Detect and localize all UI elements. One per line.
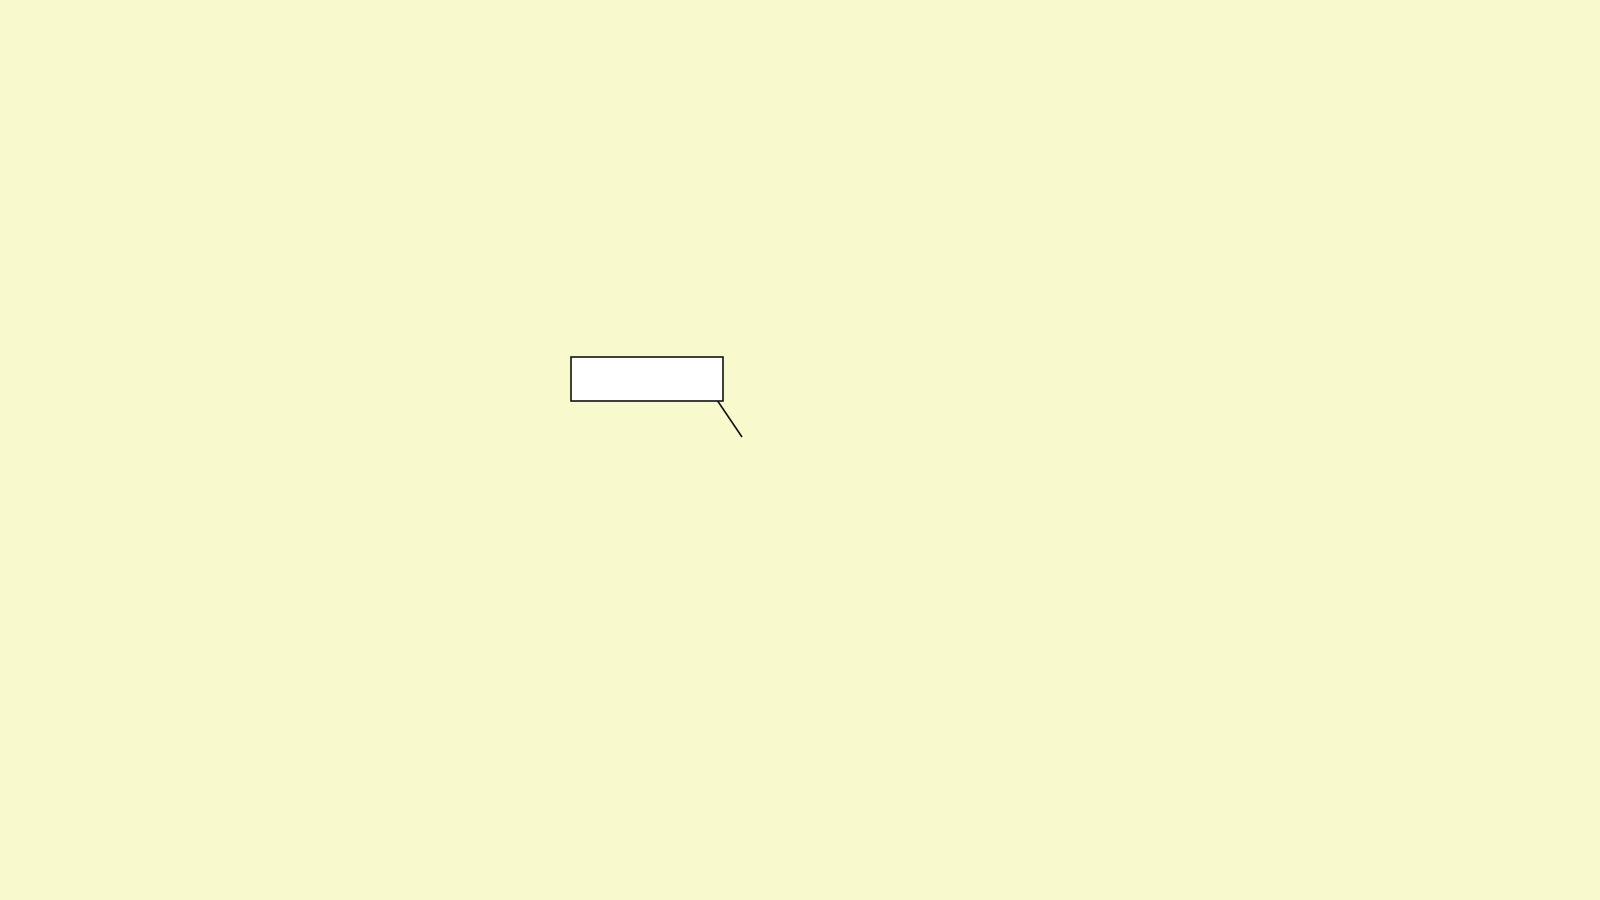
map-background bbox=[0, 0, 1600, 900]
property-label-box bbox=[571, 357, 723, 401]
map-viewport[interactable] bbox=[0, 0, 1600, 900]
map-canvas bbox=[0, 0, 1600, 900]
